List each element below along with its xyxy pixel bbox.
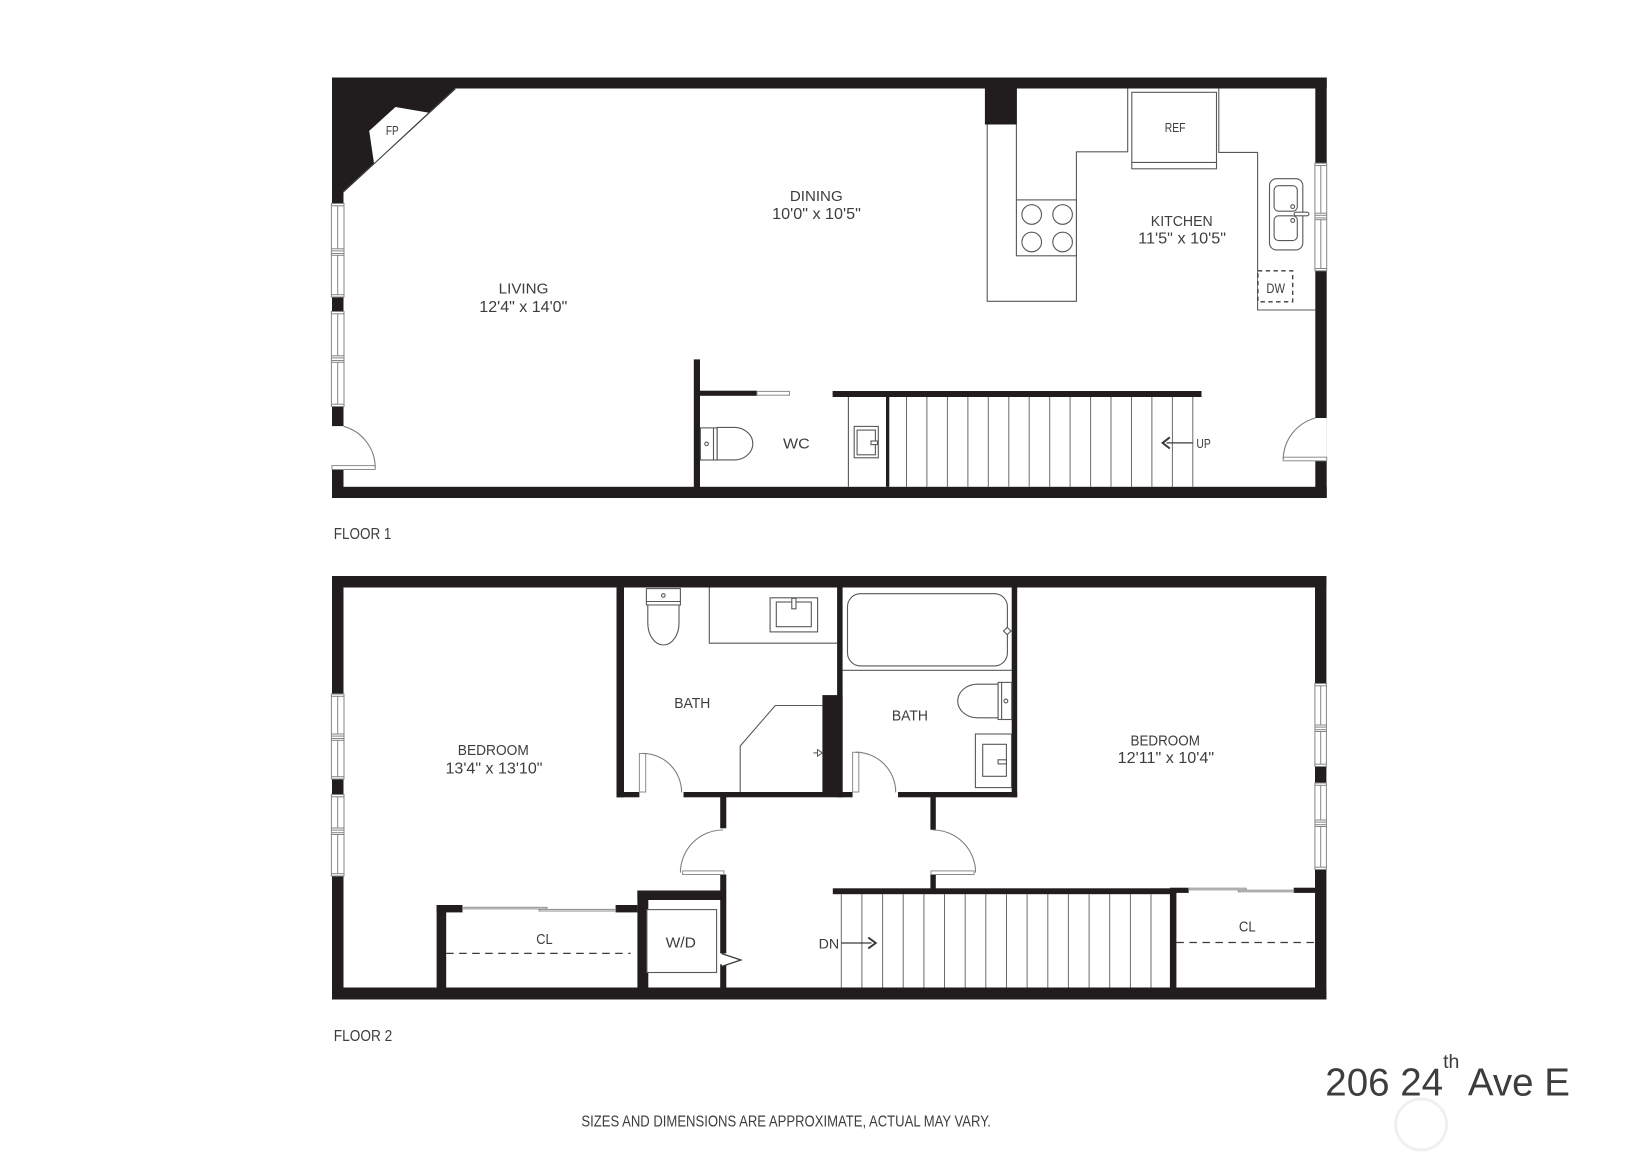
svg-text:CL: CL (536, 931, 552, 948)
svg-text:REF: REF (1165, 121, 1186, 135)
svg-text:11'5" x 10'5": 11'5" x 10'5" (1138, 231, 1226, 248)
svg-text:CL: CL (1239, 919, 1256, 936)
svg-text:13'4" x 13'10": 13'4" x 13'10" (446, 760, 543, 777)
svg-text:KITCHEN: KITCHEN (1151, 214, 1213, 230)
svg-text:DINING: DINING (790, 189, 843, 205)
svg-text:BATH: BATH (892, 709, 928, 725)
svg-text:DW: DW (1266, 280, 1285, 296)
svg-text:FLOOR 1: FLOOR 1 (334, 526, 392, 543)
svg-text:FP: FP (386, 123, 399, 138)
svg-text:UP: UP (1196, 437, 1210, 451)
svg-text:BEDROOM: BEDROOM (458, 743, 529, 759)
svg-text:BEDROOM: BEDROOM (1131, 733, 1200, 749)
svg-text:10'0" x 10'5": 10'0" x 10'5" (772, 206, 861, 223)
svg-text:WC: WC (783, 435, 810, 452)
svg-text:SIZES AND DIMENSIONS ARE APPRO: SIZES AND DIMENSIONS ARE APPROXIMATE, AC… (581, 1113, 991, 1130)
svg-text:FLOOR 2: FLOOR 2 (334, 1028, 392, 1045)
svg-text:12'4" x 14'0": 12'4" x 14'0" (479, 299, 567, 316)
svg-text:DN: DN (819, 935, 840, 951)
svg-text:BATH: BATH (674, 696, 710, 712)
svg-text:LIVING: LIVING (499, 281, 549, 297)
svg-text:12'11" x 10'4": 12'11" x 10'4" (1118, 750, 1214, 767)
svg-text:W/D: W/D (666, 934, 696, 951)
